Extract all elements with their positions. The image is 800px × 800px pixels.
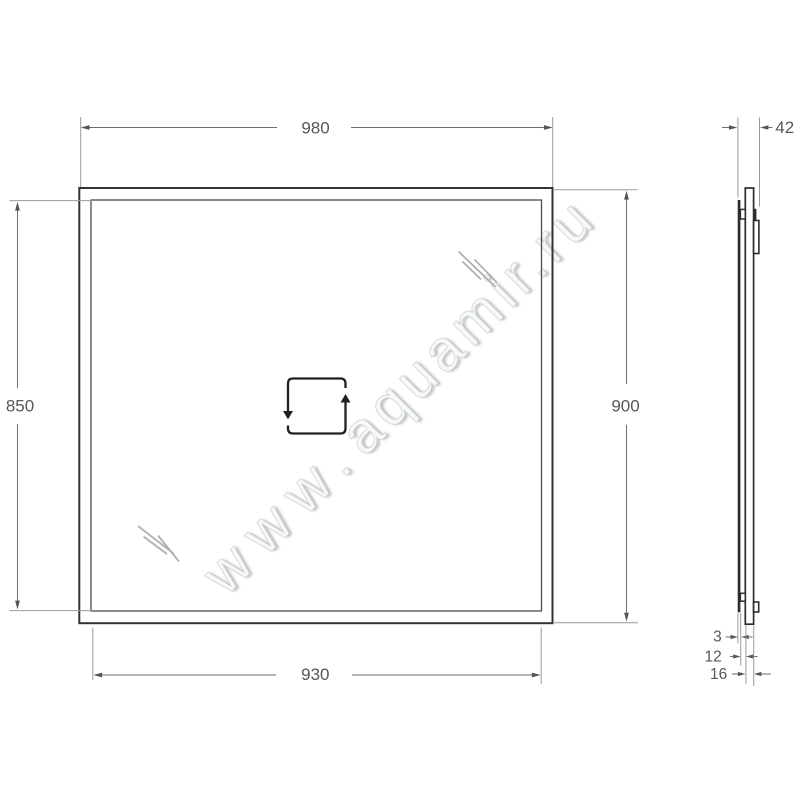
svg-text:3: 3 <box>713 629 722 646</box>
svg-text:900: 900 <box>611 397 639 416</box>
svg-text:980: 980 <box>301 119 329 138</box>
svg-text:12: 12 <box>705 649 722 666</box>
svg-text:16: 16 <box>710 666 727 683</box>
svg-text:42: 42 <box>775 118 794 137</box>
svg-text:850: 850 <box>6 397 34 416</box>
svg-text:930: 930 <box>301 665 329 684</box>
